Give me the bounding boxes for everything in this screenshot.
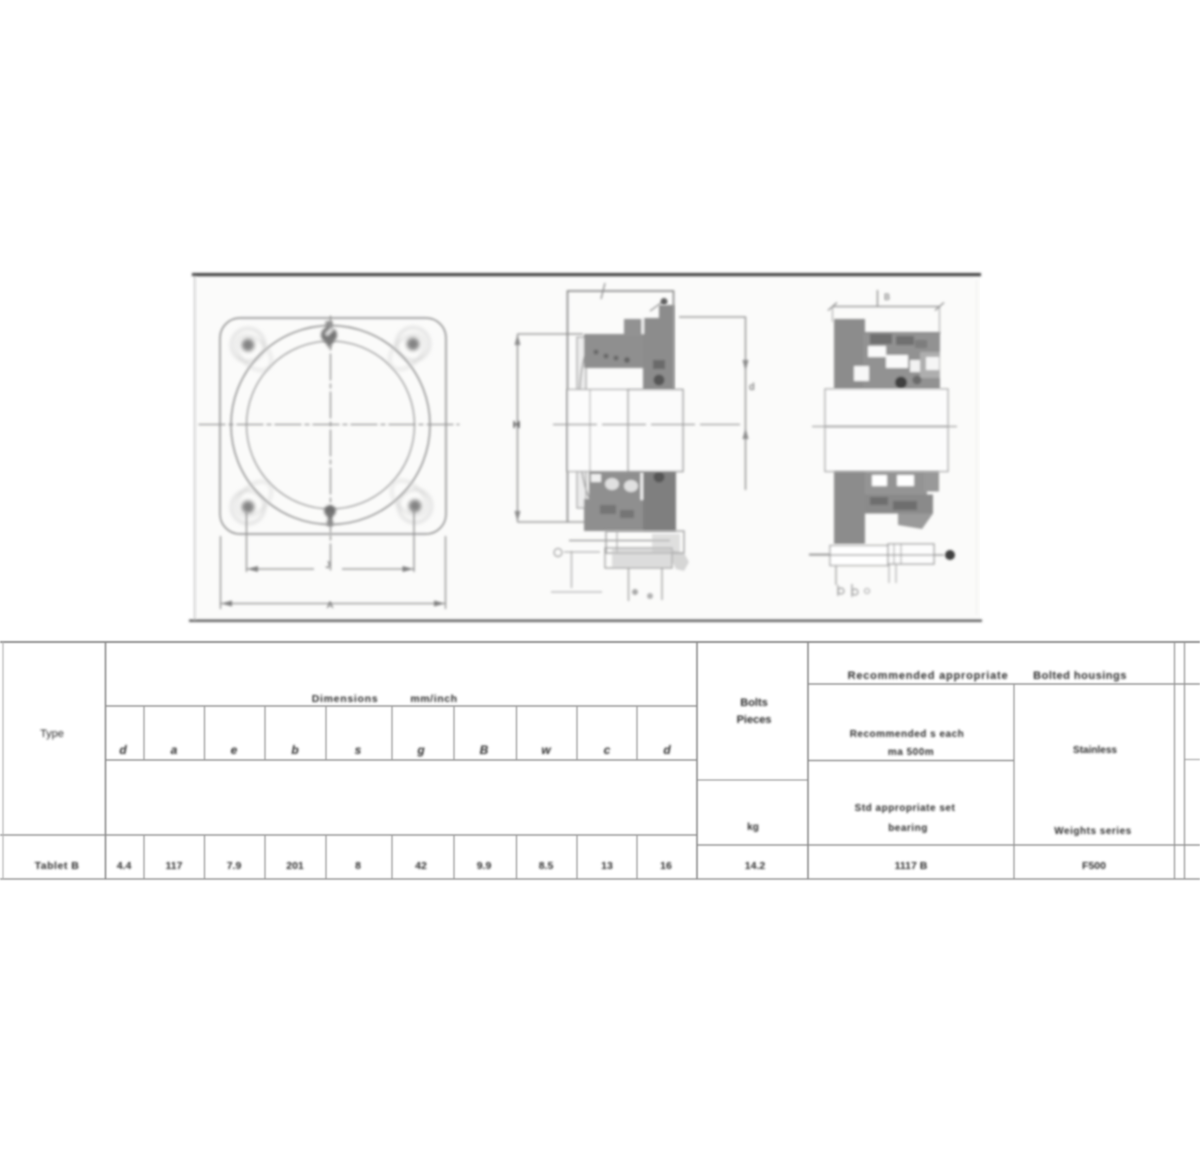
svg-text:e: e [231, 743, 238, 757]
svg-text:Pieces: Pieces [737, 714, 772, 726]
svg-text:42: 42 [415, 860, 427, 872]
svg-text:Bolted housings: Bolted housings [1033, 670, 1127, 682]
svg-text:9.9: 9.9 [477, 860, 492, 872]
svg-text:ma 500m: ma 500m [888, 747, 934, 758]
svg-text:B: B [480, 743, 489, 757]
svg-text:Recommended s each: Recommended s each [850, 729, 965, 740]
svg-text:H: H [513, 419, 521, 431]
svg-text:d: d [663, 743, 671, 757]
svg-text:Std appropriate set: Std appropriate set [855, 803, 956, 814]
svg-text:7.9: 7.9 [227, 860, 242, 872]
svg-text:16: 16 [660, 860, 672, 872]
svg-text:201: 201 [286, 860, 304, 872]
svg-text:Bolts: Bolts [740, 697, 768, 709]
svg-text:Weights series: Weights series [1054, 826, 1131, 837]
svg-text:J: J [326, 560, 331, 571]
svg-text:Type: Type [40, 728, 64, 740]
svg-text:d: d [749, 382, 755, 393]
svg-text:14.2: 14.2 [745, 860, 766, 872]
svg-text:bearing: bearing [888, 823, 928, 834]
svg-text:d: d [119, 743, 127, 757]
svg-text:13: 13 [601, 860, 613, 872]
svg-text:b: b [291, 743, 298, 757]
svg-text:A: A [327, 600, 334, 611]
svg-text:1117 B: 1117 B [895, 860, 928, 872]
svg-text:w: w [541, 743, 551, 757]
svg-text:a: a [171, 743, 178, 757]
svg-text:F500: F500 [1082, 860, 1106, 872]
svg-text:Tablet B: Tablet B [35, 860, 80, 872]
svg-text:Stainless: Stainless [1073, 745, 1117, 756]
svg-text:8: 8 [355, 860, 361, 872]
svg-text:8.5: 8.5 [539, 860, 554, 872]
svg-text:g: g [416, 743, 425, 757]
svg-text:c: c [604, 743, 611, 757]
svg-text:mm/inch: mm/inch [410, 693, 457, 705]
svg-text:s: s [355, 743, 362, 757]
svg-text:B: B [884, 292, 890, 302]
svg-text:117: 117 [166, 860, 183, 872]
svg-text:kg: kg [747, 822, 759, 833]
svg-text:Dimensions: Dimensions [312, 693, 379, 705]
svg-text:4.4: 4.4 [117, 860, 132, 872]
svg-text:Recommended appropriate: Recommended appropriate [848, 670, 1009, 682]
